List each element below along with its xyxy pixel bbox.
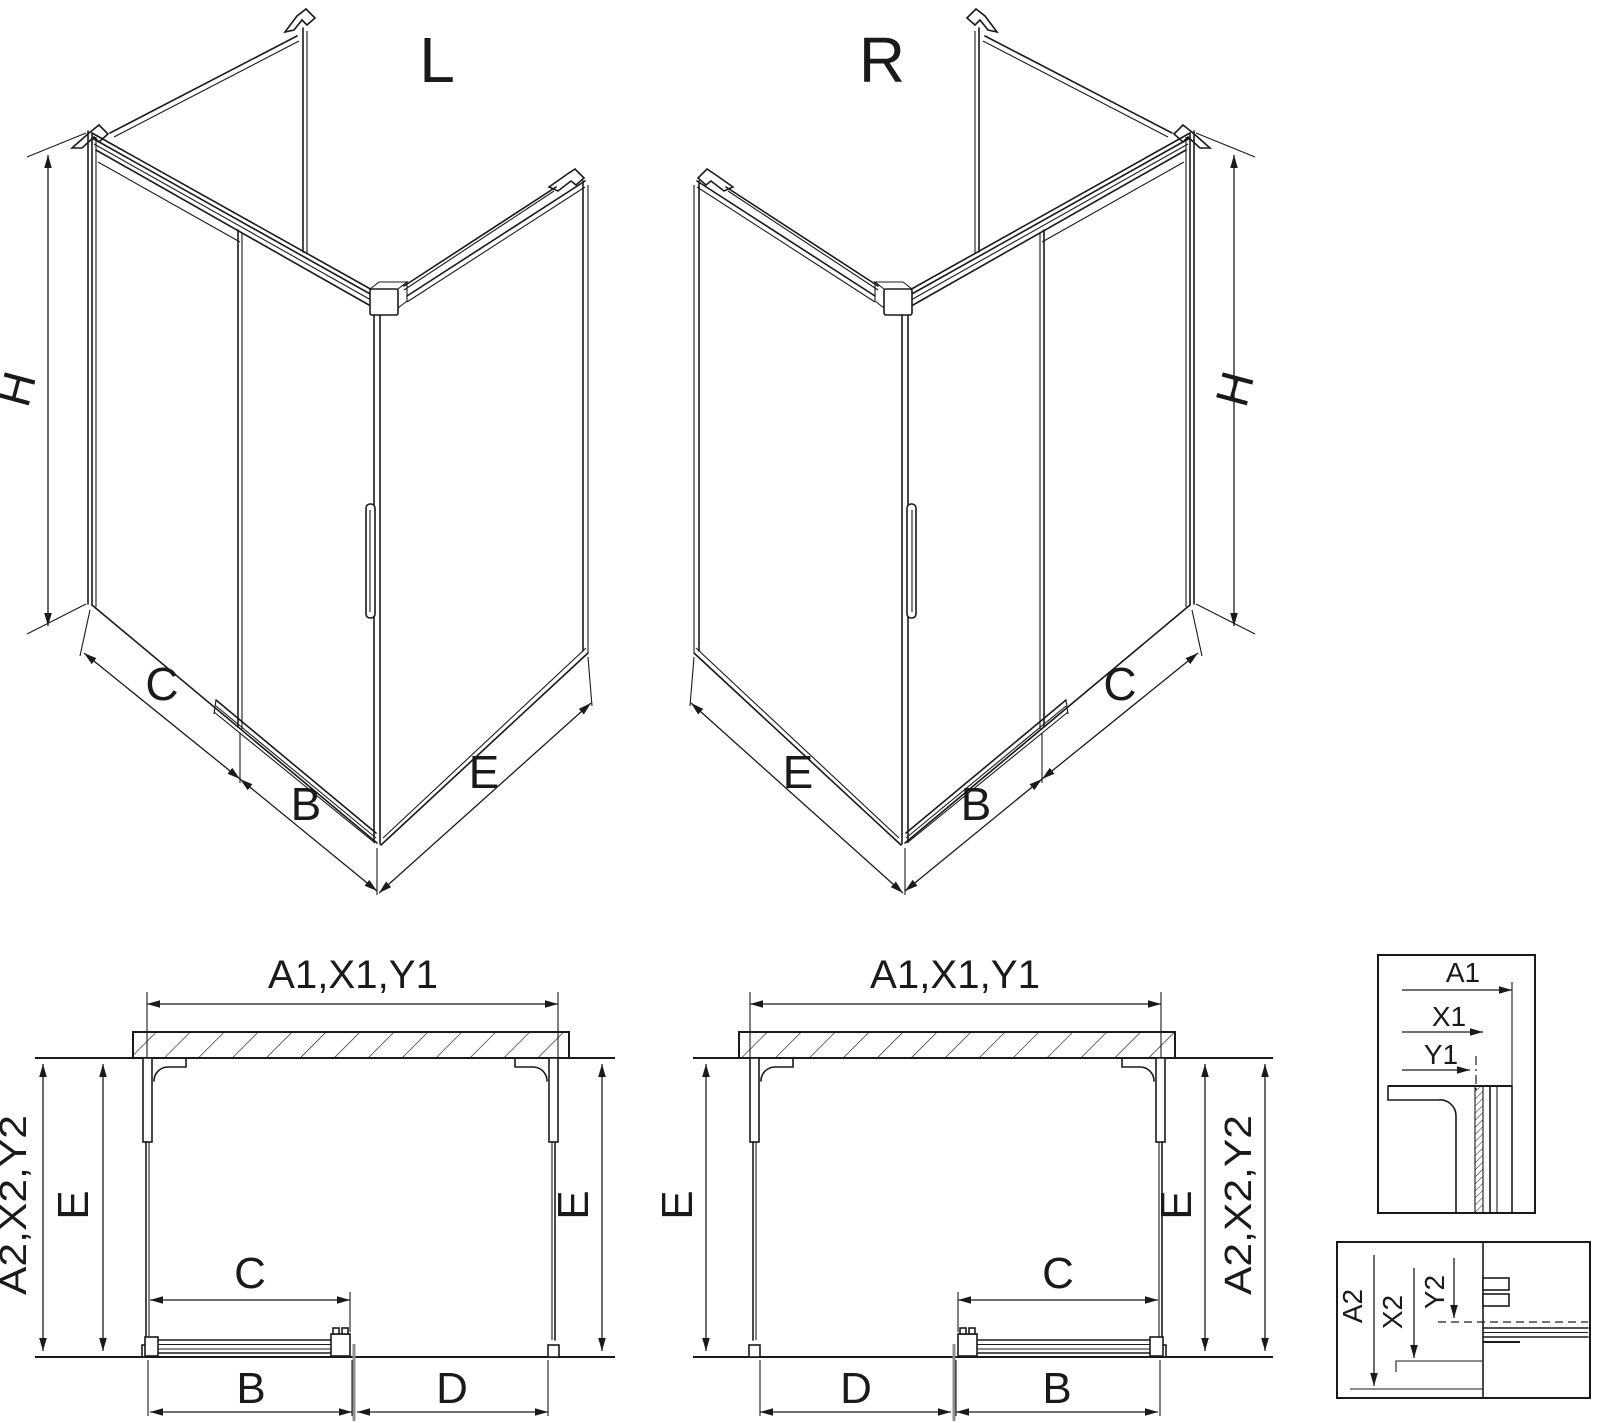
plan-left-c: C [234, 1249, 266, 1298]
dim-label-h-right: H [1205, 366, 1264, 412]
technical-drawing-page: L H C B E R H C B E A1,X1,Y1 A2,X2,Y2 E … [0, 0, 1600, 1423]
plan-left-side-dim: A2,X2,Y2 [0, 1115, 35, 1295]
wall-section-hatch-left [133, 1032, 569, 1058]
detail-x2-label: X2 [1377, 1295, 1408, 1329]
detail-box-a1: A1 X1 Y1 [1378, 955, 1535, 1213]
plan-left-top-dim: A1,X1,Y1 [268, 953, 438, 997]
plan-right-top-dim: A1,X1,Y1 [870, 953, 1040, 997]
plan-left-e-left: E [49, 1190, 98, 1219]
plan-left-d: D [436, 1364, 468, 1413]
plan-right-c: C [1042, 1249, 1074, 1298]
dim-label-h-left: H [0, 366, 46, 412]
plan-view-left: A1,X1,Y1 A2,X2,Y2 E E C B D [0, 953, 615, 1421]
plan-right-e-left: E [653, 1190, 702, 1219]
view-title-left: L [419, 24, 455, 96]
plan-left-e-right: E [549, 1190, 598, 1219]
wall-section-hatch-right [739, 1032, 1175, 1058]
shower-enclosure-technical-drawing: L H C B E R H C B E A1,X1,Y1 A2,X2,Y2 E … [0, 0, 1600, 1423]
dim-label-b-left: B [291, 778, 322, 830]
dim-label-b-right: B [961, 778, 992, 830]
plan-right-b: B [1042, 1364, 1071, 1413]
glass-section-hatch [1475, 1086, 1483, 1213]
detail-box-a2: A2 X2 Y2 [1337, 1242, 1590, 1398]
detail-y1-label: Y1 [1424, 1039, 1458, 1070]
iso-view-right: R H C B E [690, 9, 1264, 895]
detail-a1-label: A1 [1446, 957, 1480, 988]
detail-y2-label: Y2 [1419, 1275, 1450, 1309]
dim-label-e-left: E [469, 746, 500, 798]
dim-label-e-right: E [783, 746, 814, 798]
plan-right-side-dim: A2,X2,Y2 [1218, 1115, 1260, 1295]
plan-left-b: B [236, 1364, 265, 1413]
iso-view-left: L H C B E [0, 9, 592, 895]
view-title-right: R [859, 24, 905, 96]
detail-a2-label: A2 [1337, 1289, 1368, 1323]
plan-right-e-right: E [1152, 1190, 1201, 1219]
dim-label-c-left: C [145, 658, 178, 710]
plan-right-d: D [840, 1364, 872, 1413]
dim-label-c-right: C [1103, 658, 1136, 710]
detail-x1-label: X1 [1432, 1001, 1466, 1032]
plan-view-right: A1,X1,Y1 A2,X2,Y2 E E C B D [653, 953, 1273, 1421]
